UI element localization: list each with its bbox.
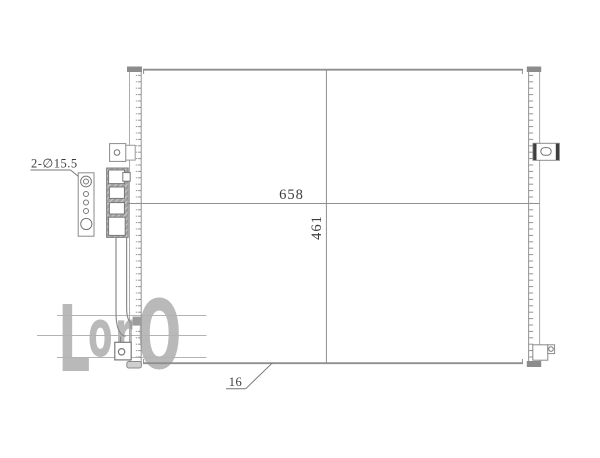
bracket-top-left: [110, 144, 136, 162]
pipe-elbow: [116, 313, 126, 337]
mounting-holes-label: 2-∅15.5: [31, 157, 78, 171]
fin-serration-right: [529, 68, 534, 364]
height-dimension-label: 461: [309, 215, 325, 240]
fitting-column-left: [107, 168, 131, 237]
fitting-port: [109, 187, 124, 198]
dimension-lines: [122, 70, 540, 363]
pipe-end-hole: [118, 349, 124, 355]
tank-cap-top-right: [527, 67, 541, 73]
fitting-port: [109, 203, 124, 214]
condenser-line-drawing: 658 461 2-∅15.5: [0, 0, 600, 458]
core-outline: [143, 70, 523, 364]
bracket-hole: [549, 347, 554, 352]
bracket-bottom-right: [533, 345, 555, 360]
bracket-slot-hole: [541, 148, 551, 156]
mounting-hole-plate: [78, 173, 94, 236]
thickness-label: 16: [229, 375, 243, 389]
mounting-hole-large: [81, 218, 92, 229]
pipe-stub-block: [133, 317, 142, 326]
tank-cap-top-left: [127, 67, 142, 73]
technical-drawing-canvas: L o r O: [0, 0, 600, 458]
tank-foot-bottom-right: [527, 361, 541, 367]
mounting-holes-leader: [31, 170, 79, 177]
bracket-hole: [114, 150, 120, 156]
tank-foot-bottom-left: [127, 362, 142, 369]
width-dimension-label: 658: [279, 187, 304, 203]
right-header-tank: [527, 67, 541, 368]
bracket-top-right: [533, 143, 559, 160]
